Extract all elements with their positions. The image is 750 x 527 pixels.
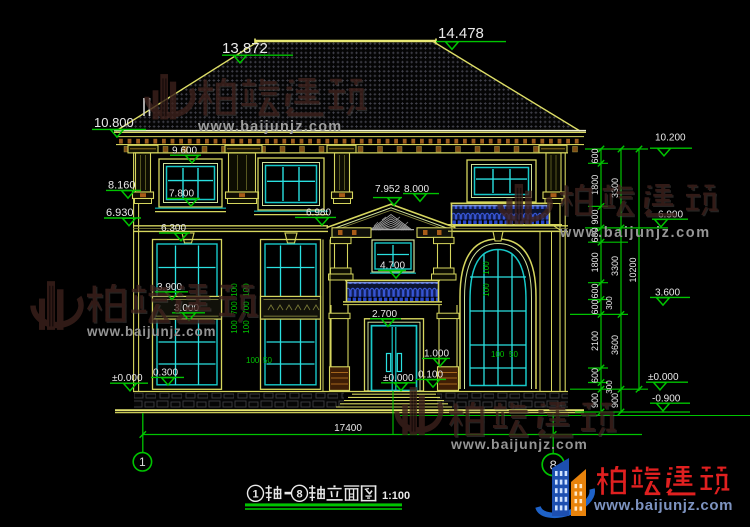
svg-text:10.800: 10.800 [94,115,134,130]
svg-text:600: 600 [590,148,600,163]
svg-text:3300: 3300 [610,256,620,276]
svg-text:3600: 3600 [610,335,620,355]
svg-text:1800: 1800 [590,252,600,272]
svg-text:1: 1 [139,455,146,469]
svg-text:www.baijunjz.com: www.baijunjz.com [197,119,342,135]
svg-text:50: 50 [263,356,272,365]
svg-text:7.952: 7.952 [375,184,400,195]
svg-text:300: 300 [605,296,614,310]
svg-text:100: 100 [482,283,491,297]
svg-text:100: 100 [230,320,239,334]
svg-text:www.baijunjz.com: www.baijunjz.com [559,225,711,241]
svg-text:10200: 10200 [628,257,638,282]
svg-text:2100: 2100 [590,331,600,351]
svg-text:100: 100 [242,320,251,334]
svg-text:50: 50 [509,350,518,359]
svg-text:10.200: 10.200 [655,133,686,144]
svg-text:www.baijunjz.com: www.baijunjz.com [450,436,588,452]
svg-text:www.baijunjz.com: www.baijunjz.com [86,324,216,339]
svg-text:600: 600 [590,368,600,383]
svg-text:700: 700 [230,301,239,315]
svg-text:8: 8 [296,488,302,500]
svg-text:300: 300 [605,380,614,394]
svg-text:www.baijunjz.com: www.baijunjz.com [593,497,733,514]
svg-text:600: 600 [590,299,600,314]
svg-text:100: 100 [246,356,260,365]
svg-text:17400: 17400 [334,423,362,434]
svg-text:100: 100 [491,350,505,359]
svg-text:600: 600 [590,283,600,298]
svg-text:14.478: 14.478 [438,25,484,42]
svg-text:1: 1 [252,488,258,500]
svg-text:13.872: 13.872 [222,40,268,57]
svg-text:100: 100 [482,261,491,275]
svg-text:1:100: 1:100 [382,490,410,502]
